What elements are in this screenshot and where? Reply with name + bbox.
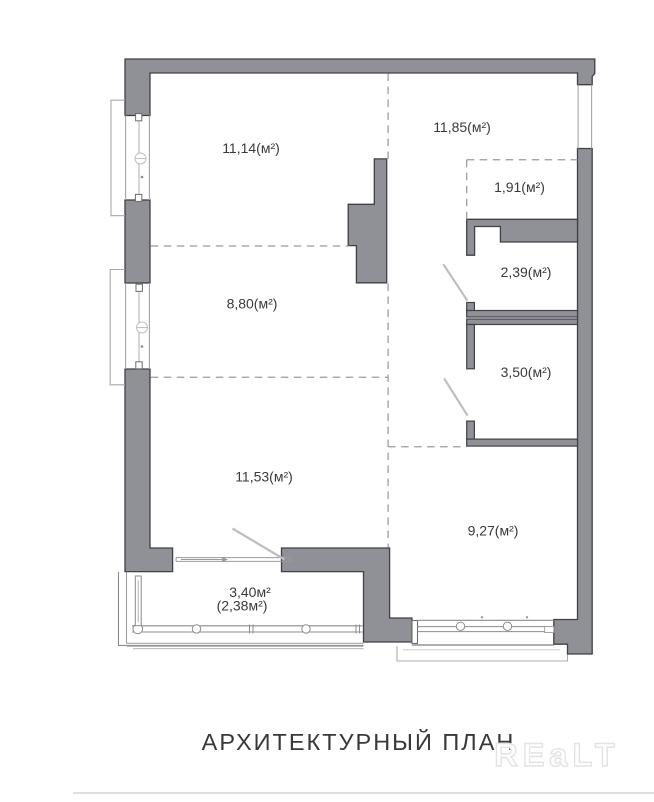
svg-text:2,39(м²): 2,39(м²) bbox=[501, 264, 552, 280]
svg-text:3,50(м²): 3,50(м²) bbox=[501, 364, 552, 380]
svg-text:REaLT: REaLT bbox=[494, 737, 620, 773]
svg-text:1,91(м²): 1,91(м²) bbox=[494, 179, 545, 195]
svg-text:АРХИТЕКТУРНЫЙ ПЛАН: АРХИТЕКТУРНЫЙ ПЛАН bbox=[202, 728, 516, 755]
svg-text:8,80(м²): 8,80(м²) bbox=[227, 296, 278, 312]
svg-text:(2,38м²): (2,38м²) bbox=[217, 598, 268, 614]
svg-text:11,85(м²): 11,85(м²) bbox=[433, 119, 491, 135]
svg-text:11,14(м²): 11,14(м²) bbox=[222, 140, 280, 156]
svg-text:11,53(м²): 11,53(м²) bbox=[235, 469, 293, 485]
svg-text:9,27(м²): 9,27(м²) bbox=[468, 523, 519, 539]
